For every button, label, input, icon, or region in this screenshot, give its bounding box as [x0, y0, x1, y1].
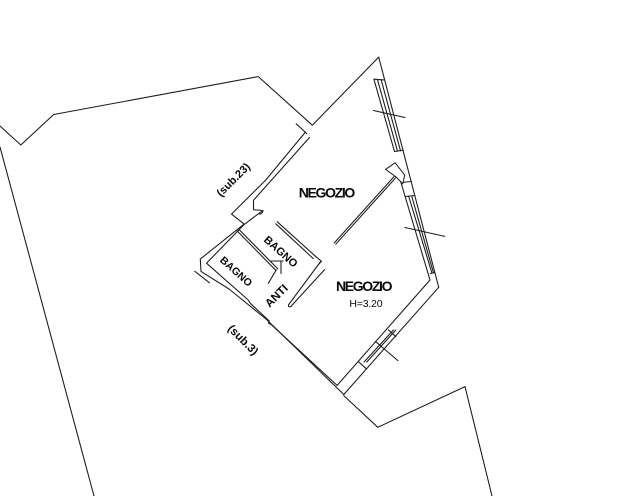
- svg-text:NEGOZIO: NEGOZIO: [336, 278, 393, 294]
- svg-text:NEGOZIO: NEGOZIO: [299, 185, 356, 201]
- svg-text:H=3.20: H=3.20: [349, 298, 382, 310]
